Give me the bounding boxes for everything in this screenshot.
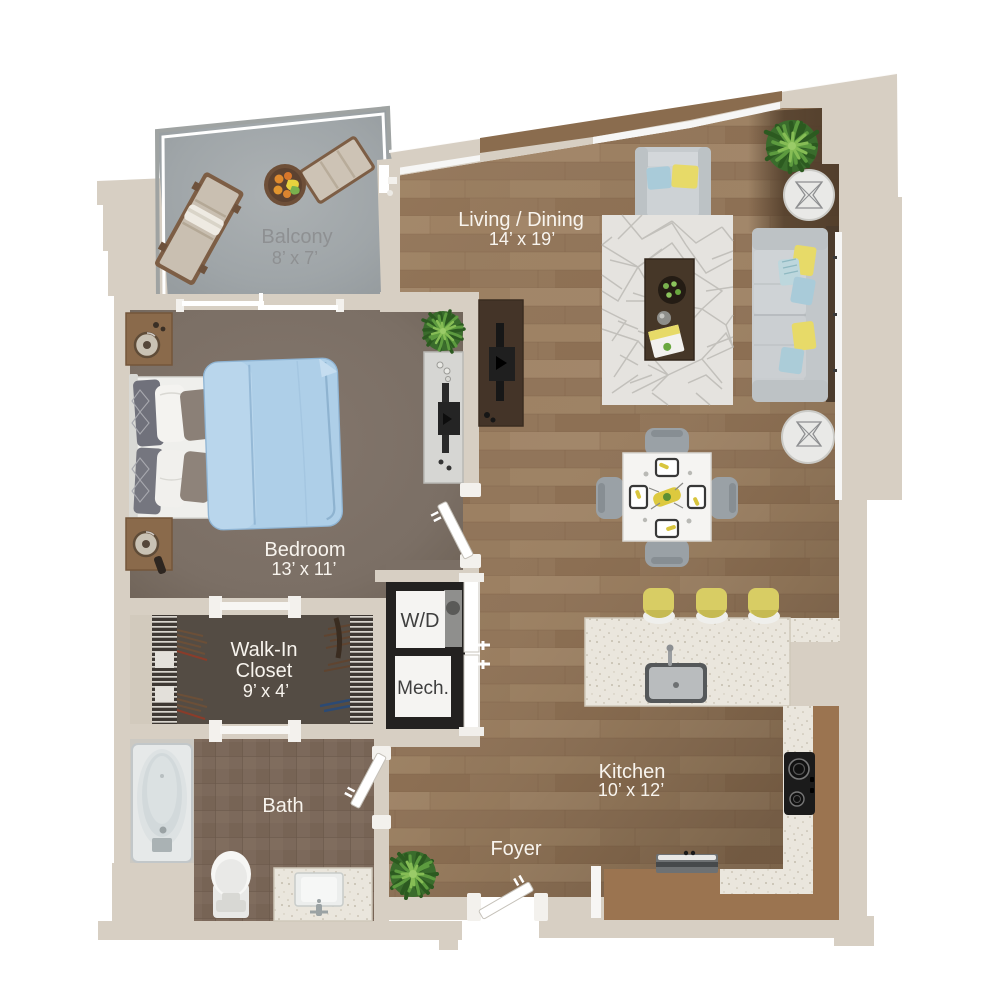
svg-text:Bath: Bath [262, 795, 303, 817]
svg-text:Mech.: Mech. [397, 678, 449, 699]
svg-text:W/D: W/D [401, 610, 440, 632]
svg-text:Bedroom: Bedroom [264, 539, 345, 561]
svg-text:Closet: Closet [236, 660, 293, 682]
svg-text:10’ x 12’: 10’ x 12’ [598, 780, 664, 800]
svg-text:14’ x 19’: 14’ x 19’ [489, 229, 555, 249]
svg-text:9’ x 4’: 9’ x 4’ [243, 681, 289, 701]
svg-text:Living / Dining: Living / Dining [458, 209, 584, 231]
svg-text:13’ x 11’: 13’ x 11’ [271, 559, 336, 579]
svg-text:Balcony: Balcony [261, 226, 332, 248]
svg-text:Foyer: Foyer [490, 838, 541, 860]
svg-text:8’ x 7’: 8’ x 7’ [272, 248, 318, 268]
svg-text:Walk-In: Walk-In [230, 639, 297, 661]
